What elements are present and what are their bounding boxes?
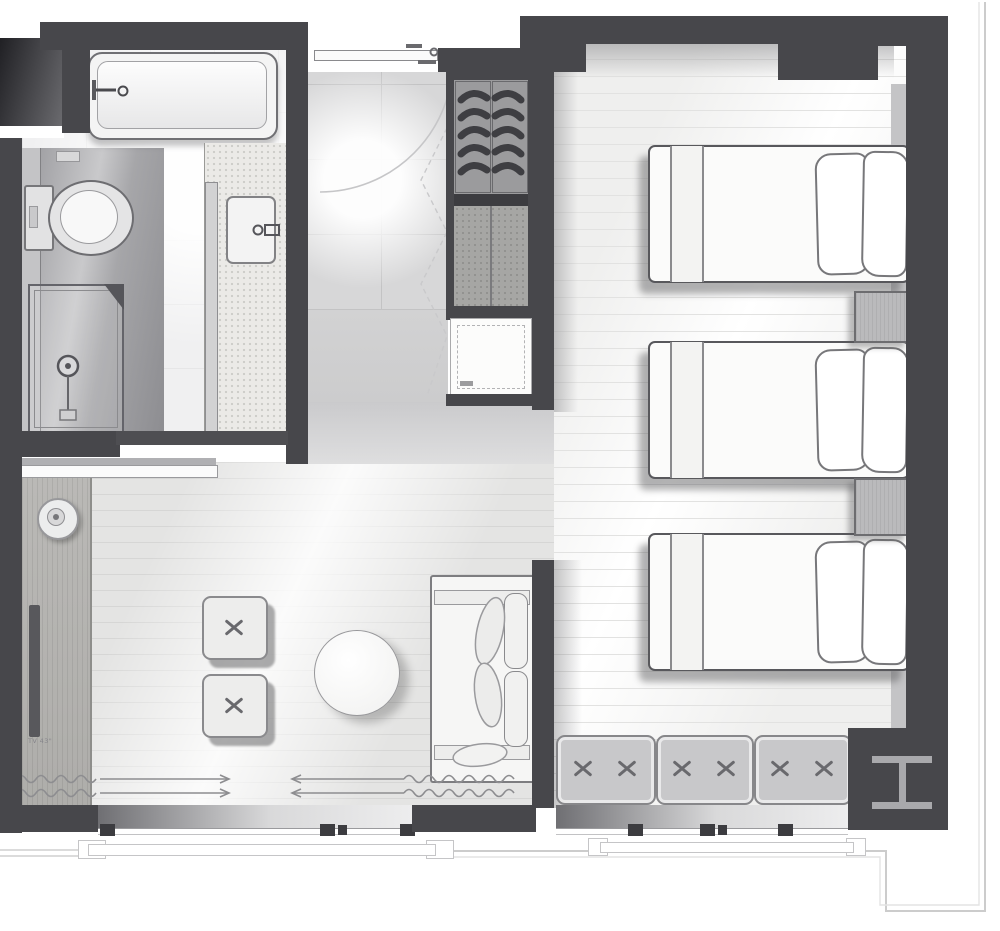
ottoman-2 bbox=[202, 674, 268, 738]
bed-pillow bbox=[861, 347, 909, 474]
shaft-gap bbox=[0, 126, 64, 138]
wall-bathroom-right bbox=[286, 22, 308, 464]
single-bed-2 bbox=[648, 341, 910, 479]
wall-left bbox=[0, 138, 22, 833]
living-window-frame bbox=[98, 828, 412, 835]
window-clip bbox=[320, 824, 335, 836]
bench-cushion-2 bbox=[656, 735, 754, 805]
cabinet-center-line bbox=[490, 206, 492, 306]
window-clip bbox=[718, 825, 727, 835]
hanger-rail-icon bbox=[454, 80, 528, 194]
micro-label-mark bbox=[460, 381, 473, 386]
x-mark bbox=[715, 757, 737, 779]
wardrobe-hanging-section bbox=[454, 80, 528, 194]
living-window-sill bbox=[88, 844, 436, 856]
x-mark bbox=[223, 616, 245, 638]
single-bed-3 bbox=[648, 533, 910, 671]
wall-bedroom-top bbox=[554, 16, 780, 44]
bed-pillow bbox=[861, 539, 909, 666]
console-round-object bbox=[37, 498, 79, 540]
window-clip bbox=[778, 824, 793, 836]
sink-faucet-icon bbox=[250, 219, 284, 241]
x-mark bbox=[671, 757, 693, 779]
x-mark bbox=[769, 757, 791, 779]
shower-valve-icon bbox=[48, 354, 92, 426]
console-round-object-dot bbox=[53, 514, 59, 520]
wall-bottomleft-a bbox=[18, 805, 98, 832]
window-clip bbox=[700, 824, 715, 836]
luggage-rack bbox=[450, 318, 532, 396]
bedroom-window-sill bbox=[600, 842, 854, 853]
tv-size-label: TV 43" bbox=[28, 737, 52, 745]
sofa-pillows-icon bbox=[452, 583, 522, 783]
ottoman-1 bbox=[202, 596, 268, 660]
toilet-seat bbox=[60, 190, 118, 244]
shower-glass-corner bbox=[104, 284, 124, 310]
toilet-paper-holder bbox=[56, 151, 80, 162]
curtain-track-annotation bbox=[14, 770, 524, 804]
x-mark bbox=[572, 757, 594, 779]
window-clip bbox=[628, 824, 643, 836]
bathroom-sliding-door bbox=[2, 465, 218, 478]
toilet-flush-button bbox=[29, 206, 38, 228]
window-clip bbox=[338, 825, 347, 835]
ibeam-bottom bbox=[872, 802, 932, 809]
nightstand-1 bbox=[854, 291, 910, 343]
bed-pillow bbox=[861, 151, 909, 278]
wardrobe-lower-cabinet bbox=[454, 206, 528, 306]
bench-cushion-3 bbox=[754, 735, 852, 805]
bed-fold-band bbox=[670, 146, 704, 282]
bathroom-sliding-door-track bbox=[2, 458, 216, 465]
wall-bottomleft-b bbox=[412, 805, 536, 832]
wall-bottomright-block bbox=[848, 728, 948, 830]
wall-tv bbox=[29, 605, 40, 737]
living-window-glass bbox=[98, 805, 412, 828]
shower-enclosure bbox=[28, 284, 124, 434]
wall-bath-bottom-left bbox=[0, 431, 120, 457]
single-bed-1 bbox=[648, 145, 910, 283]
wardrobe-divider bbox=[454, 194, 528, 206]
vanity-mirror bbox=[205, 182, 218, 436]
wall-bath-bottom-right bbox=[116, 431, 288, 445]
bench-cushion-1 bbox=[556, 735, 656, 805]
wall-under-luggage bbox=[446, 394, 536, 406]
x-mark bbox=[223, 694, 245, 716]
window-clip bbox=[100, 824, 115, 836]
toilet bbox=[24, 180, 136, 254]
shaft-block bbox=[0, 38, 62, 126]
x-mark bbox=[813, 757, 835, 779]
bed-fold-band bbox=[670, 534, 704, 670]
nightstand-2 bbox=[854, 478, 910, 536]
bed-fold-band bbox=[670, 342, 704, 478]
steel-column-icon bbox=[872, 756, 932, 809]
wall-mid-lower bbox=[532, 560, 554, 808]
x-mark bbox=[616, 757, 638, 779]
sofa bbox=[430, 575, 536, 783]
luggage-rack-dashed bbox=[457, 325, 525, 389]
wall-tub-pier bbox=[62, 43, 90, 133]
bathtub-faucet-icon bbox=[92, 76, 136, 104]
bathtub bbox=[88, 52, 278, 140]
floor-plan: TV 43" bbox=[0, 0, 1000, 931]
round-table bbox=[314, 630, 400, 716]
wall-right bbox=[906, 28, 948, 822]
